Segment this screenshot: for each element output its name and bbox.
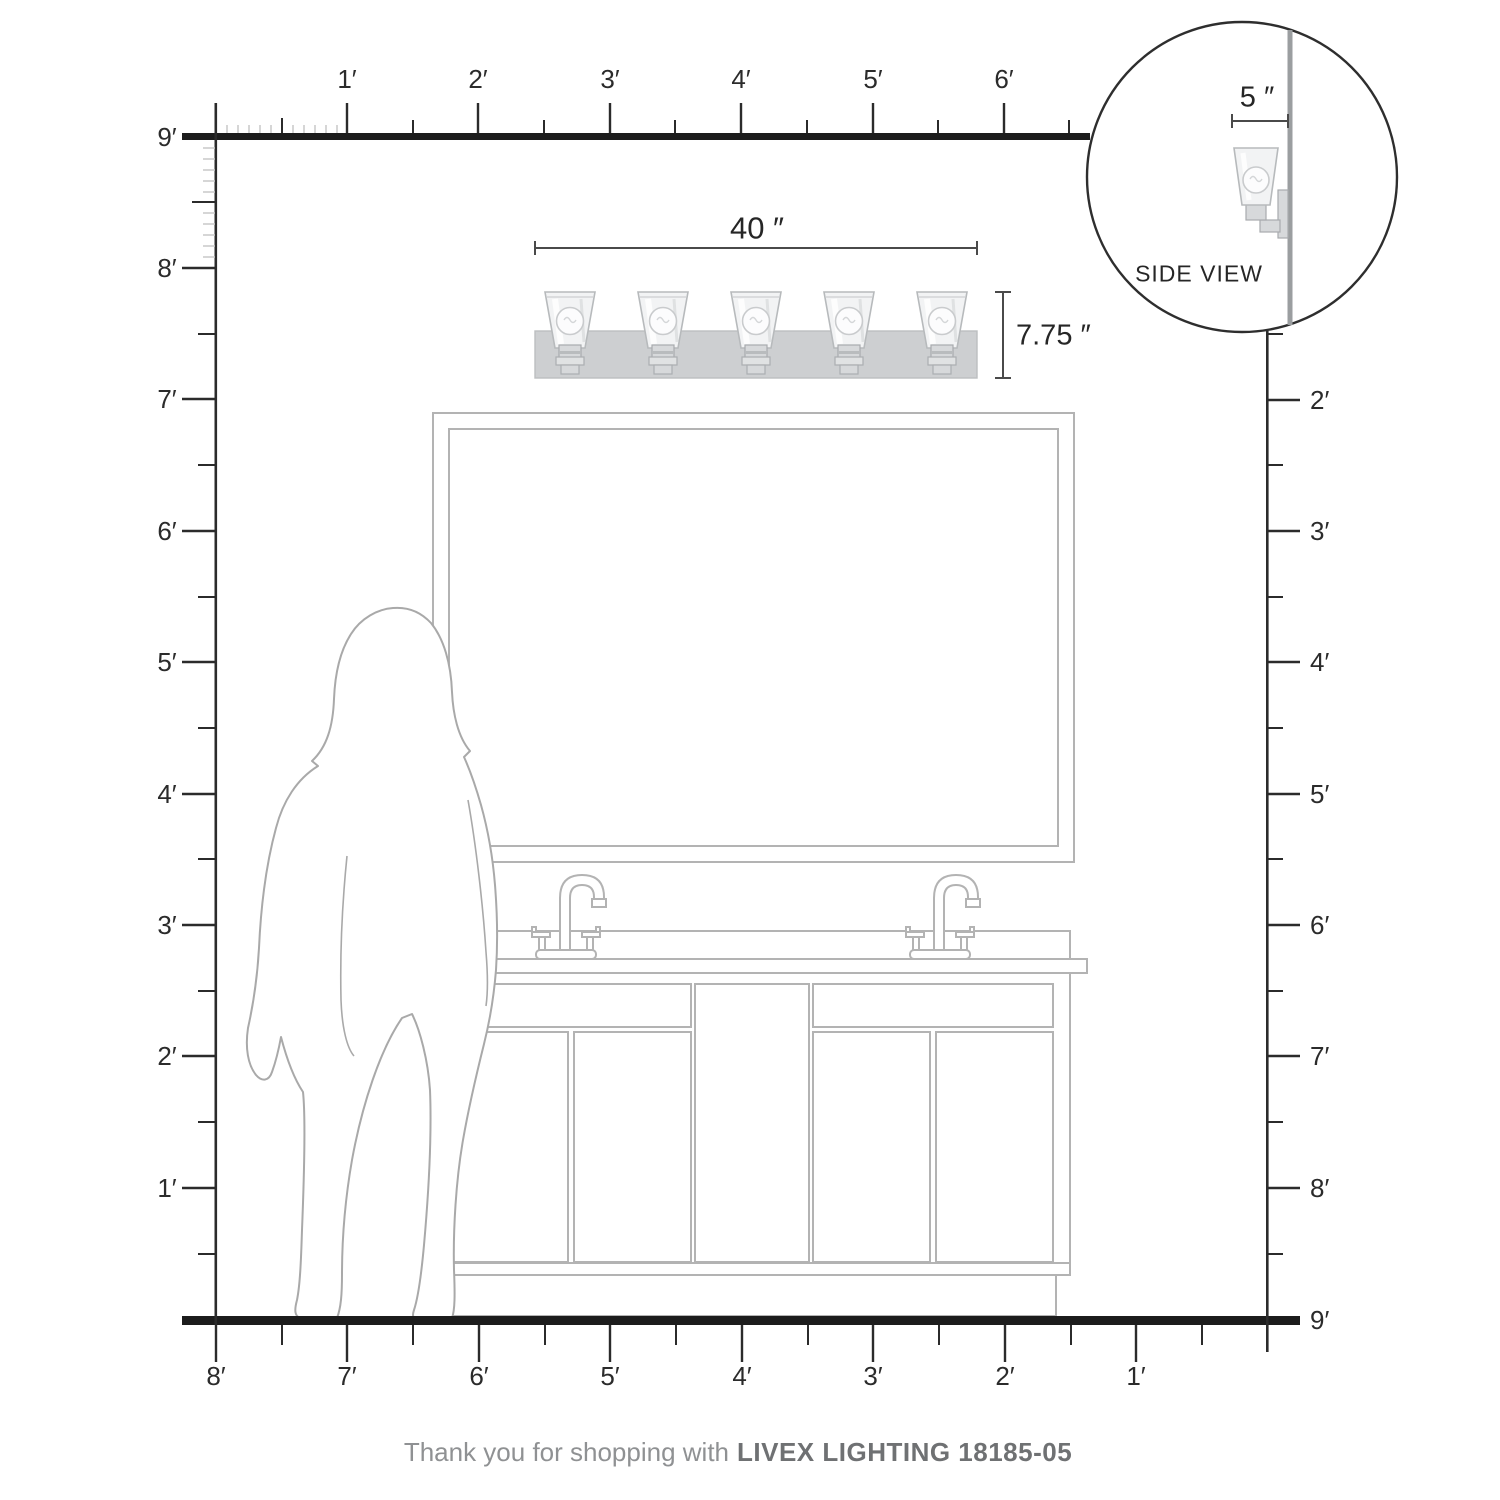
left-ruler-label-4ft: 4′ bbox=[157, 781, 176, 807]
left-ruler-label-1ft: 1′ bbox=[157, 1175, 176, 1201]
fixture-width-label: 40 ″ bbox=[730, 213, 784, 244]
right-ruler-label-5ft: 5′ bbox=[1310, 781, 1329, 807]
bottom-ruler-label-6ft: 6′ bbox=[469, 1363, 488, 1389]
bottom-ruler-label-5ft: 5′ bbox=[600, 1363, 619, 1389]
right-ruler-label-4ft: 4′ bbox=[1310, 649, 1329, 675]
left-ruler-label-6ft: 6′ bbox=[157, 518, 176, 544]
right-ruler-label-2ft: 2′ bbox=[1310, 387, 1329, 413]
top-half-foot-ticks bbox=[282, 118, 1069, 133]
bottom-ruler-label-1ft: 1′ bbox=[1126, 1363, 1145, 1389]
height-dimension-line bbox=[995, 292, 1011, 378]
sconce-depth-label: 5 ″ bbox=[1240, 84, 1274, 113]
faucet-nozzle bbox=[966, 899, 980, 907]
footer-message: Thank you for shopping withLIVEX LIGHTIN… bbox=[404, 1439, 1072, 1465]
left-ruler-label-9ft: 9′ bbox=[157, 124, 176, 150]
fixture-height-label: 7.75 ″ bbox=[1016, 322, 1091, 351]
bathroom-scene bbox=[417, 413, 1087, 1316]
faucet-spout bbox=[560, 875, 604, 959]
top-ruler-label-1ft: 1′ bbox=[337, 66, 356, 92]
faucet-handle-tab bbox=[532, 927, 536, 932]
top-ruler-label-5ft: 5′ bbox=[863, 66, 882, 92]
faucet-nozzle bbox=[592, 899, 606, 907]
mount-arm bbox=[1260, 220, 1280, 232]
right-ruler-label-8ft: 8′ bbox=[1310, 1175, 1329, 1201]
footer-brand-model: LIVEX LIGHTING 18185-05 bbox=[737, 1437, 1072, 1467]
faucet-handle-stem bbox=[913, 937, 919, 950]
left-ruler-label-5ft: 5′ bbox=[157, 649, 176, 675]
floor-ruler-line bbox=[182, 1316, 1300, 1325]
left-ruler-label-8ft: 8′ bbox=[157, 255, 176, 281]
right-ruler-line bbox=[1266, 331, 1269, 1352]
faucet-handle-tab bbox=[970, 927, 974, 932]
faucet-handle-stem bbox=[961, 937, 967, 950]
right-ruler-label-6ft: 6′ bbox=[1310, 912, 1329, 938]
top-ruler-label-6ft: 6′ bbox=[994, 66, 1013, 92]
right-ruler-label-3ft: 3′ bbox=[1310, 518, 1329, 544]
woman-silhouette bbox=[247, 608, 497, 1318]
left-half-foot-ticks bbox=[192, 202, 215, 1254]
cabinet-body bbox=[434, 973, 1070, 1275]
cabinet-toe-base bbox=[448, 1275, 1056, 1316]
bottom-ruler-label-3ft: 3′ bbox=[863, 1363, 882, 1389]
right-faucet bbox=[906, 875, 980, 959]
left-ruler-label-7ft: 7′ bbox=[157, 386, 176, 412]
right-foot-ticks bbox=[1268, 400, 1300, 1188]
right-door-1 bbox=[813, 1032, 930, 1262]
right-door-2 bbox=[936, 1032, 1053, 1262]
woman-outline bbox=[247, 608, 497, 1318]
faucet-handle-stem bbox=[587, 937, 593, 950]
faucet-spout bbox=[934, 875, 978, 959]
left-faucet bbox=[532, 875, 606, 959]
center-panel bbox=[695, 984, 809, 1262]
side-view-label: SIDE VIEW bbox=[1135, 263, 1263, 286]
faucet-base-plate bbox=[910, 950, 970, 959]
vanity-light-fixture bbox=[535, 292, 977, 378]
bottom-ruler-label-2ft: 2′ bbox=[995, 1363, 1014, 1389]
faucet-base-plate bbox=[536, 950, 596, 959]
left-ruler-label-3ft: 3′ bbox=[157, 912, 176, 938]
right-ruler-label-7ft: 7′ bbox=[1310, 1043, 1329, 1069]
vanity-cabinet bbox=[434, 973, 1070, 1316]
right-drawer-front bbox=[813, 984, 1053, 1027]
top-ruler-label-3ft: 3′ bbox=[600, 66, 619, 92]
mirror-outer-frame bbox=[433, 413, 1074, 862]
product-dimension-diagram: 1′ 2′ 3′ 4′ 5′ 6′ 9′ 8′ 7′ 6′ 5′ 4′ 3′ 2… bbox=[0, 0, 1500, 1500]
top-ruler-line bbox=[182, 133, 1090, 140]
top-ruler-label-4ft: 4′ bbox=[731, 66, 750, 92]
right-ruler-label-9ft: 9′ bbox=[1310, 1307, 1329, 1333]
footer-text: Thank you for shopping with bbox=[404, 1437, 729, 1467]
mirror-inner-frame bbox=[449, 429, 1058, 846]
bottom-ruler-label-4ft: 4′ bbox=[732, 1363, 751, 1389]
faucet-handle-stem bbox=[539, 937, 545, 950]
faucet-handle-tab bbox=[596, 927, 600, 932]
left-ruler-line bbox=[215, 103, 218, 1325]
left-door-2 bbox=[574, 1032, 691, 1262]
top-ruler-label-2ft: 2′ bbox=[468, 66, 487, 92]
bottom-ruler-label-8ft: 8′ bbox=[206, 1363, 225, 1389]
mirror bbox=[433, 413, 1074, 862]
left-ruler-label-2ft: 2′ bbox=[157, 1043, 176, 1069]
bottom-ruler-label-7ft: 7′ bbox=[337, 1363, 356, 1389]
vanity-countertop bbox=[417, 959, 1087, 973]
faucet-handle-tab bbox=[906, 927, 910, 932]
